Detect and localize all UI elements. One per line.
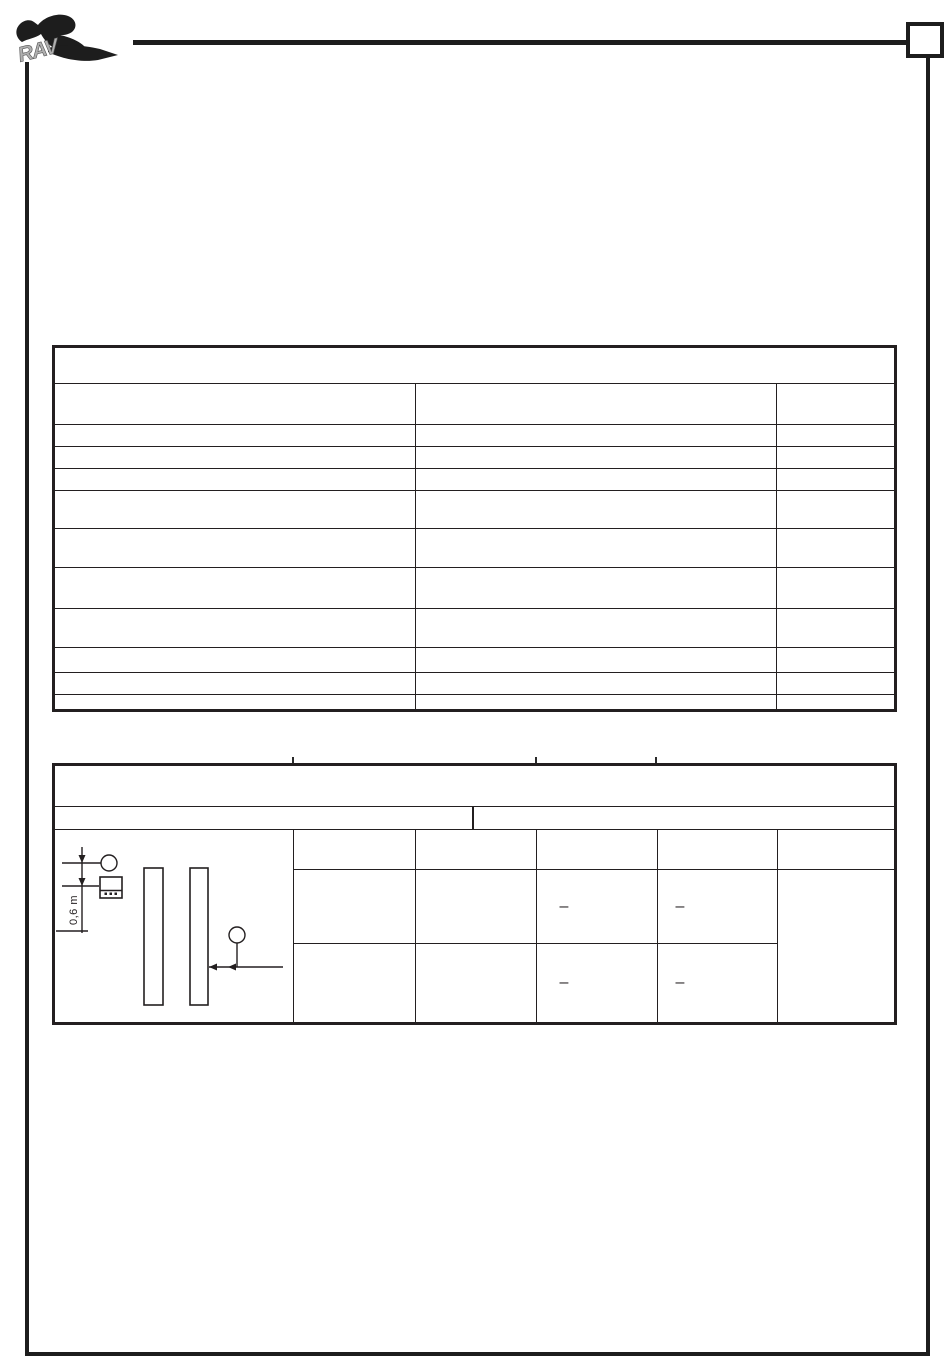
table-cell — [416, 384, 777, 424]
table-row — [55, 695, 894, 709]
table-cell — [777, 609, 894, 647]
table-row — [55, 469, 894, 491]
table-cell: – — [536, 944, 657, 1022]
table-cell — [777, 469, 894, 490]
table-cell — [416, 469, 777, 490]
dimension-label: 0,6 m — [66, 887, 82, 933]
callout-circle-icon — [101, 855, 117, 871]
table-cell — [55, 673, 416, 694]
table-row — [55, 447, 894, 469]
table-row — [55, 609, 894, 648]
column-header-cell — [536, 830, 657, 870]
table-cell — [777, 648, 894, 672]
table-2-subheader-row — [55, 807, 894, 831]
arrow-down-icon — [79, 855, 86, 863]
lift-diagram-icon — [55, 830, 292, 1022]
table-1-title-cell — [55, 348, 894, 384]
table-cell — [55, 695, 416, 709]
page-border-left — [25, 62, 29, 1354]
table-cell — [777, 695, 894, 709]
column-header-cell — [294, 830, 415, 870]
table-cell — [416, 695, 777, 709]
table-cell — [416, 529, 777, 567]
table-cell — [55, 491, 416, 528]
table-cell — [416, 609, 777, 647]
logo-mark-icon: RAV — [8, 8, 144, 66]
table-cell — [55, 568, 416, 608]
table-cell — [777, 491, 894, 528]
table-cell — [55, 648, 416, 672]
table-cell — [415, 944, 536, 1022]
arrow-down-icon — [79, 878, 86, 886]
page-border-bottom — [25, 1352, 930, 1356]
table-cell — [416, 673, 777, 694]
table-cell — [415, 870, 536, 944]
table-2-grid: – – – – — [294, 830, 895, 1022]
table-cell — [294, 870, 415, 944]
table-cell — [777, 384, 894, 424]
table-cell — [416, 447, 777, 468]
column-header-cell — [415, 830, 536, 870]
table-cell — [416, 491, 777, 528]
table-cell — [777, 673, 894, 694]
lift-post-icon — [144, 868, 163, 1005]
lift-post-icon — [190, 868, 208, 1005]
table-cell: – — [536, 870, 657, 944]
table-cell — [416, 648, 777, 672]
table-1 — [52, 345, 897, 712]
table-cell: – — [657, 944, 777, 1022]
arrow-left-icon — [228, 964, 236, 971]
table-cell — [777, 568, 894, 608]
control-box-icon — [100, 877, 122, 898]
arrow-left-icon — [209, 964, 217, 971]
table-cell: – — [657, 870, 777, 944]
callout-circle-icon — [229, 927, 245, 943]
table-cell — [416, 568, 777, 608]
table-cell — [55, 384, 416, 424]
table-row — [55, 568, 894, 609]
rav-logo: RAV — [8, 8, 144, 66]
column-header-cell — [657, 830, 777, 870]
page-border-right — [926, 56, 930, 1354]
table-cell — [55, 807, 474, 830]
installation-diagram: 0,6 m — [55, 830, 294, 1022]
table-cell — [777, 447, 894, 468]
table-cell — [474, 807, 894, 830]
header-rule — [133, 40, 908, 45]
table-cell — [416, 425, 777, 446]
table-cell — [55, 469, 416, 490]
table-cell — [777, 529, 894, 567]
table-cell — [294, 944, 415, 1022]
table-2: 0,6 m – – – – — [52, 763, 897, 1025]
page-number-box — [906, 22, 944, 58]
table-row — [55, 648, 894, 673]
table-cell — [55, 447, 416, 468]
table-2-title-cell — [55, 766, 894, 807]
table-2-body: 0,6 m – – – – — [55, 830, 894, 1022]
table-cell — [55, 529, 416, 567]
table-row — [55, 384, 894, 425]
table-cell — [777, 425, 894, 446]
table-cell-merged — [777, 870, 895, 1022]
table-cell — [55, 425, 416, 446]
table-row — [55, 673, 894, 695]
column-header-cell — [777, 830, 895, 870]
table-row — [55, 529, 894, 568]
manual-page: RAV — [0, 0, 950, 1369]
table-row — [55, 425, 894, 447]
table-row — [55, 491, 894, 529]
table-cell — [55, 609, 416, 647]
